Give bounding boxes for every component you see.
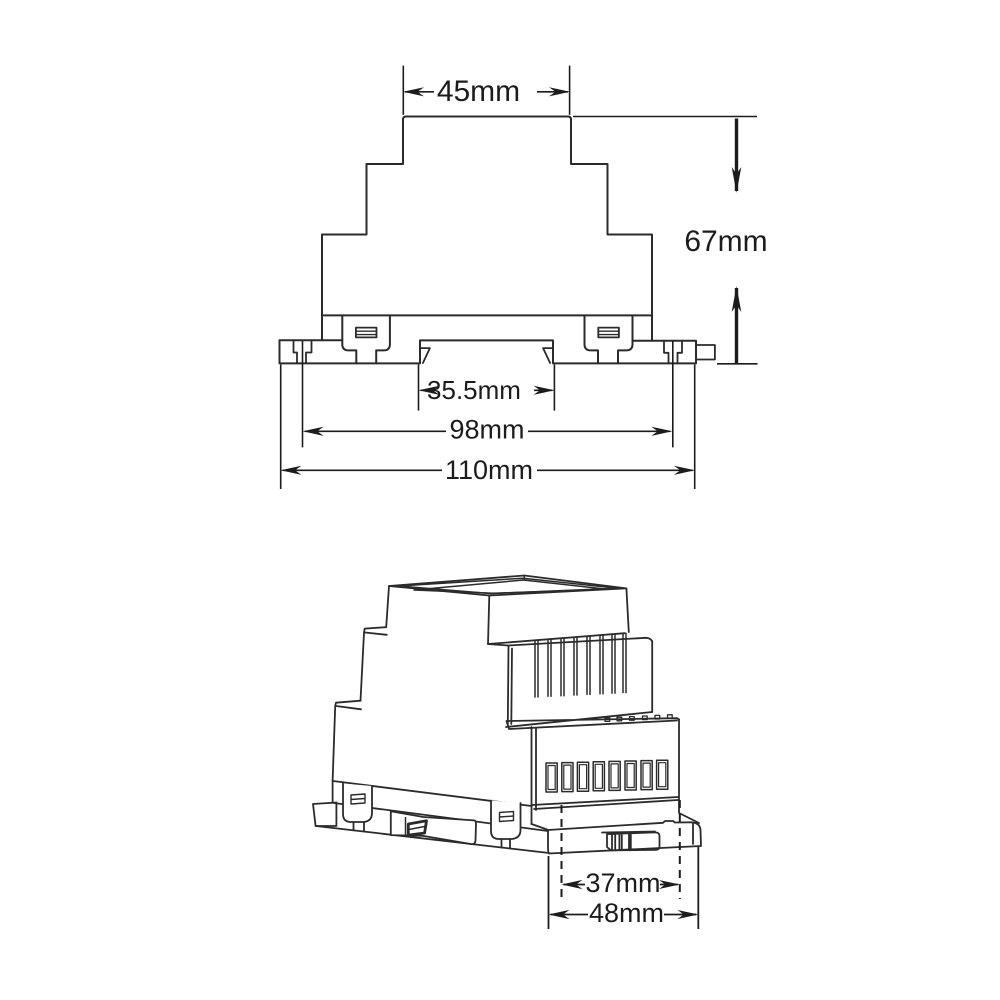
svg-text:37mm: 37mm (585, 868, 660, 898)
svg-text:45mm: 45mm (437, 75, 520, 108)
svg-text:67mm: 67mm (684, 225, 767, 258)
svg-text:35.5mm: 35.5mm (427, 375, 521, 405)
svg-text:110mm: 110mm (445, 455, 533, 485)
svg-text:48mm: 48mm (589, 898, 664, 928)
svg-text:98mm: 98mm (449, 415, 524, 445)
